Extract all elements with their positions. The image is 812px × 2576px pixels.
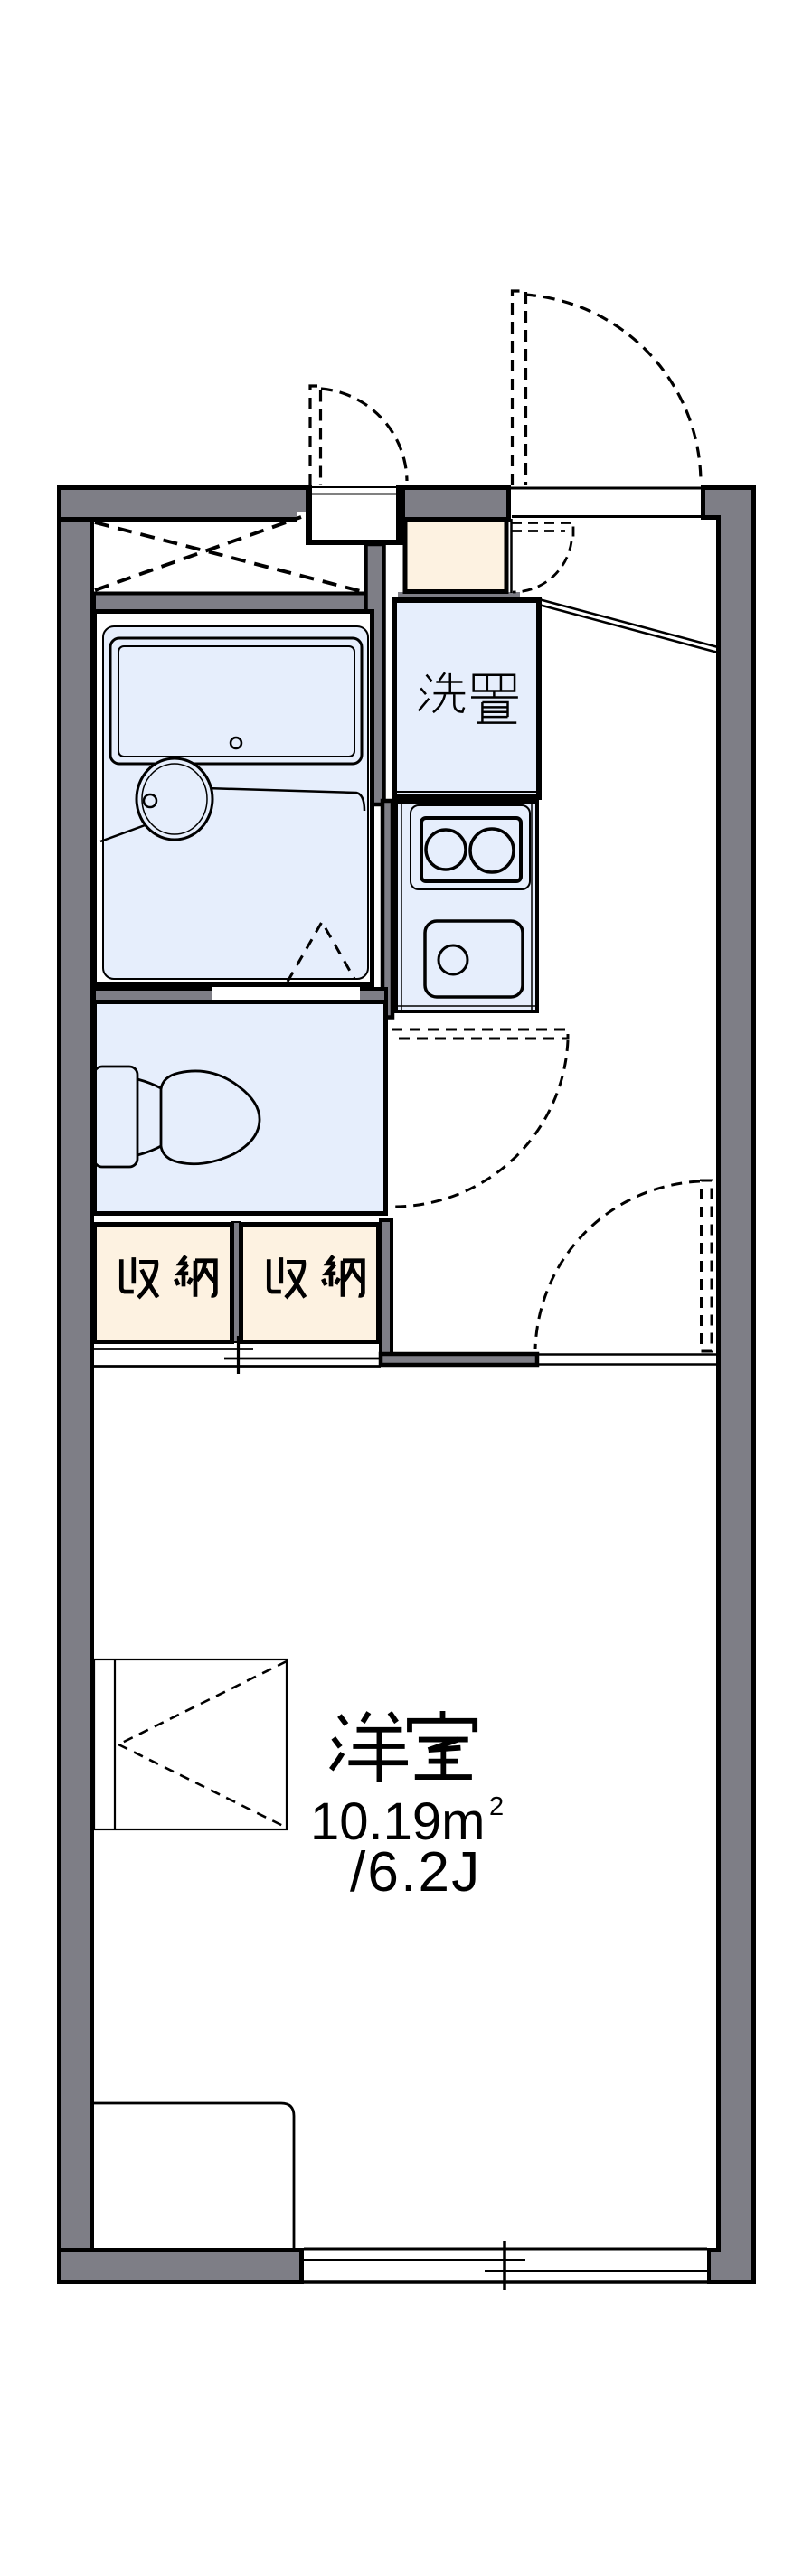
- svg-text:2: 2: [489, 1792, 504, 1821]
- svg-text:/6.2J: /6.2J: [350, 1841, 481, 1904]
